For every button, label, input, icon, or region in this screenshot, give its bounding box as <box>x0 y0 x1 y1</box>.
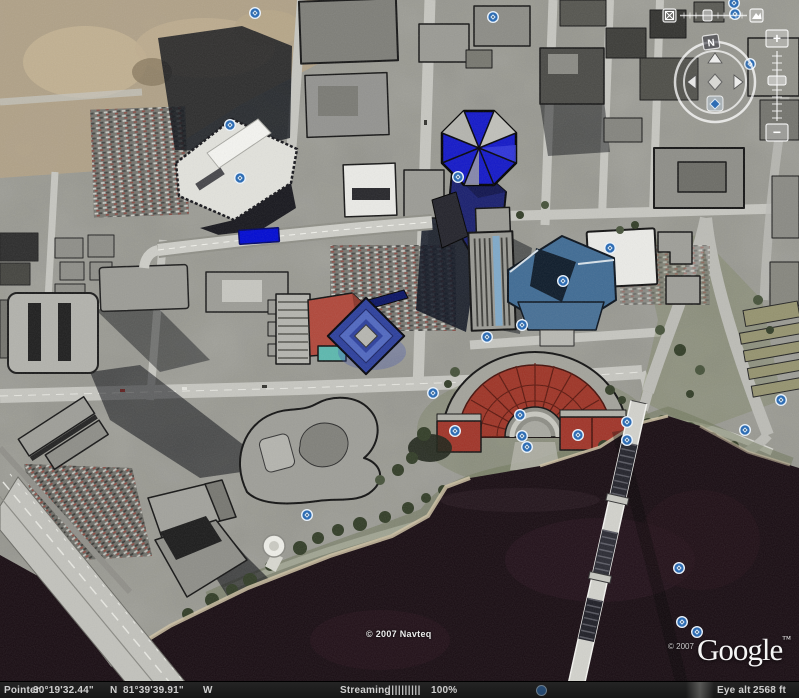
placemark-icon[interactable] <box>522 442 533 453</box>
placemark-icon[interactable] <box>515 410 526 421</box>
eye-alt-label: Eye alt <box>717 685 751 696</box>
placemark-icon[interactable] <box>250 8 261 19</box>
compass-north-tab[interactable]: N <box>702 34 720 50</box>
placemark-icon[interactable] <box>302 510 313 521</box>
placemark-icon[interactable] <box>573 430 584 441</box>
placemark-icon[interactable] <box>453 172 464 183</box>
placemark-icon[interactable] <box>488 12 499 23</box>
zoom-in-button[interactable]: + <box>773 30 781 46</box>
placemark-icon[interactable] <box>517 320 528 331</box>
placemark-icon[interactable] <box>622 435 633 446</box>
trademark-symbol: ™ <box>782 634 791 644</box>
google-logo-text: Google <box>697 632 782 667</box>
aerial-map-viewport[interactable]: N + − <box>0 0 799 682</box>
tilt-slider-handle[interactable] <box>703 10 712 21</box>
placemark-icon[interactable] <box>225 120 236 131</box>
placemark-icon[interactable] <box>729 0 740 8</box>
pointer-longitude: 81°39'39.91" <box>123 685 184 696</box>
placemark-icon[interactable] <box>558 276 569 287</box>
placemark-icon[interactable] <box>740 425 751 436</box>
copyright-text: © 2007 <box>668 642 694 651</box>
placemark-icon[interactable] <box>622 417 633 428</box>
placemark-icon[interactable] <box>450 426 461 437</box>
placemark-icon[interactable] <box>482 332 493 343</box>
placemark-icon[interactable] <box>677 617 688 628</box>
streaming-percent: 100% <box>431 685 457 696</box>
navteq-attribution: © 2007 Navteq <box>366 629 432 639</box>
status-bar-sheen <box>686 682 714 698</box>
placemark-icon[interactable] <box>235 173 246 184</box>
zoom-out-button[interactable]: − <box>773 124 781 140</box>
eye-alt-value: 2568 ft <box>753 685 786 696</box>
streaming-label: Streaming <box>340 685 391 696</box>
compass-north-label: N <box>707 38 716 50</box>
placemark-icon[interactable] <box>776 395 787 406</box>
zoom-slider-handle[interactable] <box>768 76 786 85</box>
placemark-icon[interactable] <box>605 243 616 254</box>
latitude-hemisphere: N <box>110 685 117 696</box>
placemark-icon[interactable] <box>730 9 741 20</box>
placemark-icon <box>536 685 547 696</box>
longitude-hemisphere: W <box>203 685 213 696</box>
placemark-icon[interactable] <box>428 388 439 399</box>
pan-down-button[interactable] <box>707 96 723 111</box>
google-logo: Google™ <box>697 634 791 665</box>
placemark-icon[interactable] <box>517 431 528 442</box>
placemark-icon[interactable] <box>674 563 685 574</box>
status-bar: Pointer 30°19'32.44" N 81°39'39.91" W St… <box>0 681 799 698</box>
streaming-progress-bars: |||||||||| <box>388 685 421 696</box>
google-earth-window: N + − © 2007 Navt <box>0 0 799 698</box>
pointer-latitude: 30°19'32.44" <box>33 685 94 696</box>
